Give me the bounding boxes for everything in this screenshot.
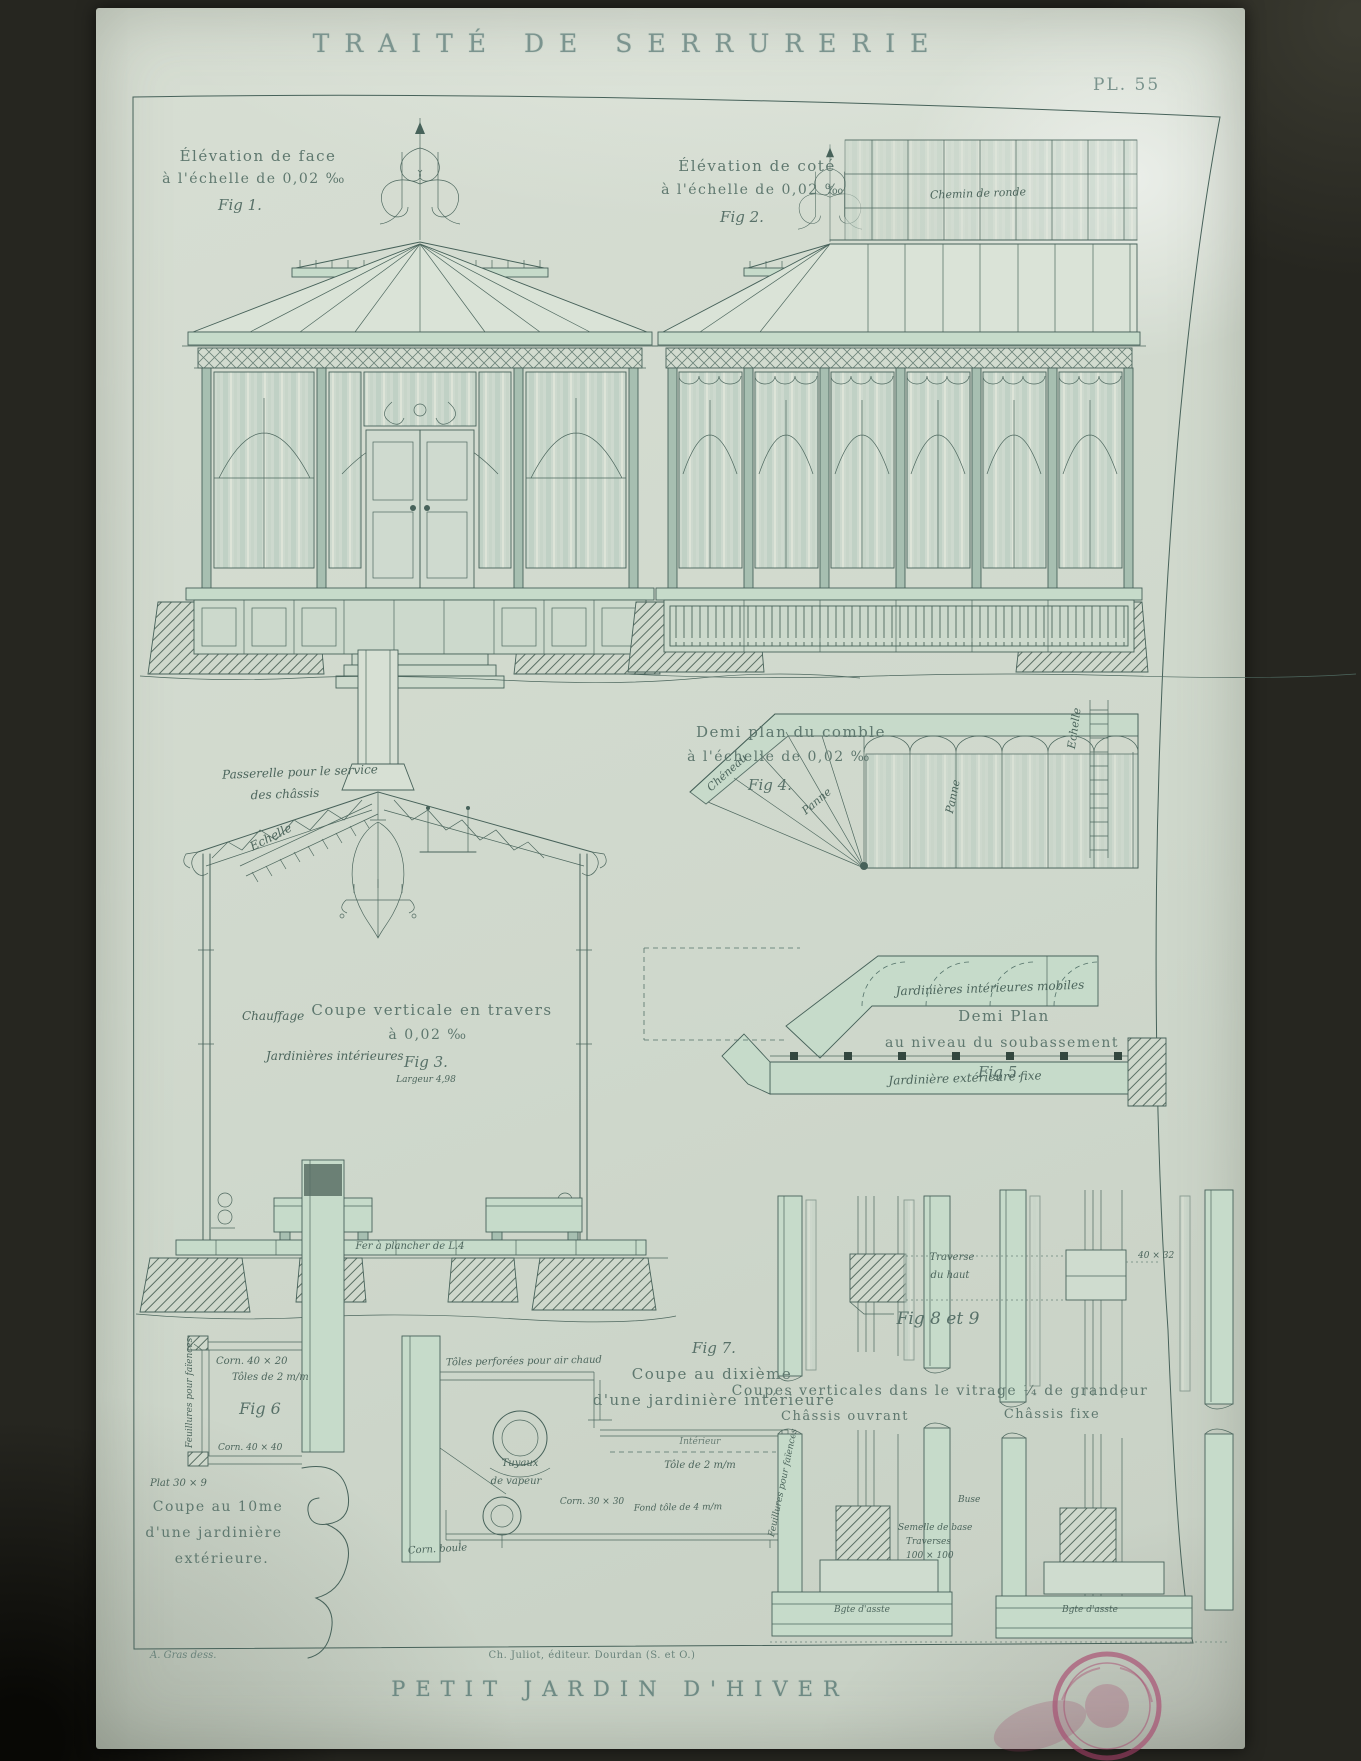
fig7-corn-label: Corn. 30 × 30	[560, 1498, 624, 1508]
fig5-caption-line1: Demi Plan	[958, 1008, 1050, 1025]
plate-number: PL. 55	[1093, 76, 1160, 95]
fig6-caption-line1: Coupe au 10me	[153, 1500, 284, 1515]
fig89-bgte-left-label: Bgte d'asste	[834, 1606, 890, 1616]
fig89-semelle-label-line2: Traverses	[906, 1538, 951, 1548]
fig6-label: Fig 6	[239, 1400, 281, 1418]
fig7-caption-line1: Coupe au dixième	[632, 1366, 792, 1383]
fig3-width-note: Largeur 4,98	[396, 1076, 456, 1086]
fig6-corn-bas-label: Corn. 40 × 40	[218, 1444, 282, 1454]
plate-title: TRAITÉ DE SERRURERIE	[313, 30, 944, 58]
fig2-label: Fig 2.	[720, 209, 764, 226]
fig6-caption-line3: extérieure.	[175, 1552, 270, 1567]
fig4-caption-line2: à l'échelle de 0,02 ‰	[687, 750, 871, 765]
fig3-passerelle-label-line2: des châssis	[250, 787, 319, 803]
fig1-caption-line1: Élévation de face	[180, 148, 337, 165]
fig6-caption-line2: d'une jardinière	[145, 1526, 282, 1541]
fig89-bgte-right-label: Bgte d'asste	[1062, 1606, 1118, 1616]
fig7-label: Fig 7.	[692, 1340, 736, 1357]
fig89-chassis-fixe-label: Châssis fixe	[1004, 1408, 1100, 1422]
fig7-fond-label: Fond tôle de 4 m/m	[634, 1503, 722, 1514]
fig7-tole-label: Tôle de 2 m/m	[664, 1460, 736, 1471]
ink-stamp	[988, 1654, 1159, 1761]
fig3-chauffage-label: Chauffage	[242, 1010, 304, 1023]
fig7-tuyaux-label-line1: Tuyaux	[502, 1458, 539, 1469]
plate-artwork	[0, 0, 1361, 1761]
fig5-caption-line2: au niveau du soubassement	[885, 1036, 1119, 1051]
fig6-feuillures-label: Feuillures pour faïences	[186, 1338, 196, 1448]
fig89-chassis-ouvrant-label: Châssis ouvrant	[781, 1410, 909, 1424]
fig89-label: Fig 8 et 9	[897, 1310, 980, 1329]
fig1-caption-line2: à l'échelle de 0,02 ‰	[162, 172, 346, 187]
fig89-dim-label: 40 × 32	[1138, 1252, 1174, 1262]
fig6-corn-haut-label: Corn. 40 × 20	[216, 1356, 287, 1367]
fig89-semelle-label-line1: Semelle de base	[898, 1524, 972, 1534]
fig89-traverse-label-line1: Traverse	[930, 1252, 975, 1263]
fig6-toles-label: Tôles de 2 m/m	[232, 1372, 309, 1383]
fig89-buse-label: Buse	[958, 1496, 980, 1506]
fig3-caption-line1: Coupe verticale en travers	[311, 1002, 552, 1019]
fig3-label: Fig 3.	[404, 1054, 448, 1071]
fig89-semelle-label-line3: 100 × 100	[906, 1552, 954, 1562]
fig6-plat-label: Plat 30 × 9	[150, 1478, 207, 1489]
fig3-jardinieres-label: Jardinières intérieures	[266, 1050, 404, 1063]
photo-backdrop: TRAITÉ DE SERRURERIE PL. 55 Élévation de…	[0, 0, 1361, 1761]
fig4-caption-line1: Demi plan du comble	[696, 724, 886, 741]
fig4-label: Fig 4.	[748, 777, 792, 794]
fig1-label: Fig 1.	[218, 197, 262, 214]
fig7-interieur-label: Intérieur	[680, 1438, 721, 1448]
fig7-tuyaux-label-line2: de vapeur	[491, 1476, 542, 1487]
plate-bottom-title: PETIT JARDIN D'HIVER	[391, 1678, 849, 1701]
fig3-cross-section-drawing	[136, 650, 676, 1322]
publisher-line: Ch. Juliot, éditeur. Dourdan (S. et O.)	[489, 1650, 696, 1661]
fig89-traverse-label-line2: du haut	[931, 1270, 970, 1281]
fig2-caption-line1: Élévation de coté	[678, 158, 835, 175]
fig3-plancher-label: Fer à plancher de L.4	[355, 1241, 464, 1252]
fig3-caption-line2: à 0,02 ‰	[388, 1028, 467, 1043]
artist-credit: A. Gras dess.	[150, 1650, 216, 1661]
fig89-caption: Coupes verticales dans le vitrage ¼ de g…	[732, 1384, 1149, 1399]
fig2-caption-line2: à l'échelle de 0,02 ‰	[661, 183, 845, 198]
